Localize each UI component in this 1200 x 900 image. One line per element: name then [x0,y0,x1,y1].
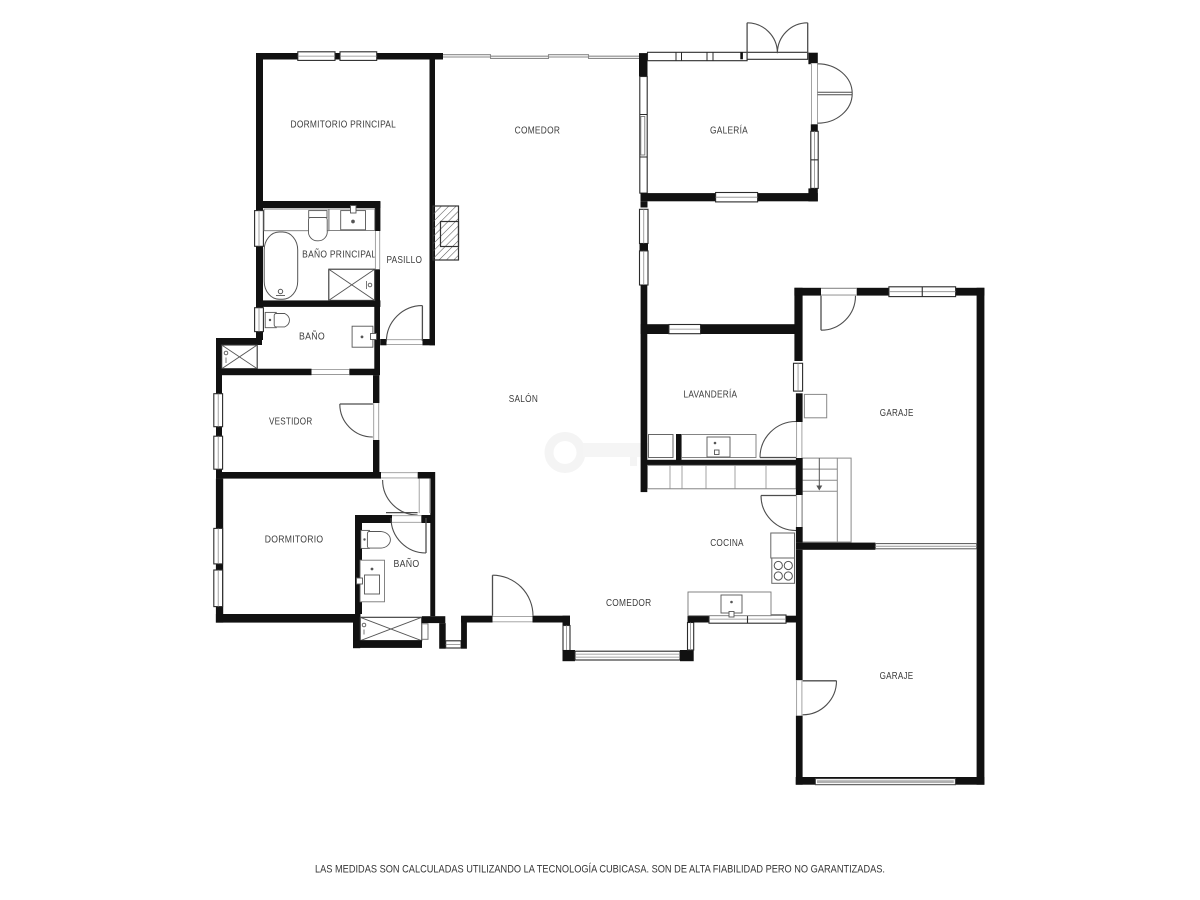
svg-text:GARAJE: GARAJE [880,408,914,419]
svg-text:PASILLO: PASILLO [386,255,422,266]
svg-text:COCINA: COCINA [710,538,744,549]
svg-text:DORMITORIO: DORMITORIO [265,535,324,546]
svg-text:BAÑO PRINCIPAL: BAÑO PRINCIPAL [302,250,377,261]
svg-text:COMEDOR: COMEDOR [606,598,652,609]
svg-text:LAVANDERÍA: LAVANDERÍA [684,390,738,401]
svg-text:BAÑO: BAÑO [299,331,325,342]
svg-text:VESTIDOR: VESTIDOR [269,416,313,427]
svg-text:LAS MEDIDAS SON CALCULADAS UTI: LAS MEDIDAS SON CALCULADAS UTILIZANDO LA… [315,863,885,876]
svg-text:GALERÍA: GALERÍA [710,126,748,137]
svg-text:COMEDOR: COMEDOR [515,125,561,136]
svg-text:SALÓN: SALÓN [509,394,538,405]
svg-text:BAÑO: BAÑO [394,559,420,570]
svg-text:DORMITORIO PRINCIPAL: DORMITORIO PRINCIPAL [291,120,397,131]
svg-text:GARAJE: GARAJE [880,671,914,682]
